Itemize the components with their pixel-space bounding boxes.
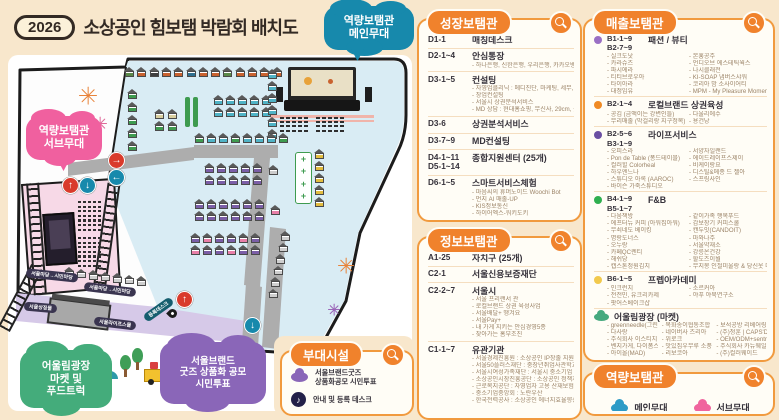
category-label: 어울림광장 (마켓) [614, 311, 679, 323]
exhibitor-name: - 캔두잇(CANDOIT) [689, 227, 767, 234]
booth-tent [202, 245, 213, 255]
booth-label: 컨설팅 [472, 75, 574, 86]
sub-stage-bubble: 역량보탬관 서브무대 [26, 116, 102, 160]
booth-label: 자치구 (25개) [472, 253, 574, 264]
booth-tent [127, 102, 138, 112]
booth-tent [278, 243, 289, 253]
audience-seat [93, 246, 96, 248]
legend-item: D3-6상권분석서비스 [428, 116, 574, 133]
panel-title: 매출보탬관 [592, 9, 678, 36]
direction-arrow: ↑ [176, 291, 193, 308]
exhibitor-name: - 캡스톤정원김치 [607, 263, 685, 270]
exhibitor-group: B1-1~9 B2-7~9패션 / 뷰티- 실크도낫- 카라슈즈- 파시에라- … [594, 32, 767, 96]
booth-tent [214, 245, 225, 255]
sub-item: - 마음씨의 휴머노이드 Woochi Bot [472, 189, 574, 196]
facility-label: 서울브랜드굿즈 상품화공모 시민투표 [315, 368, 377, 386]
direction-arrow: ← [108, 169, 125, 186]
booth-tent [225, 95, 236, 105]
sub-item: - 서울50플러스재단 : 중장년취업사관학교 [472, 362, 574, 369]
audience-seat [98, 201, 101, 203]
panel-title: 성장보탬관 [426, 9, 512, 36]
audience-seat [88, 219, 91, 221]
audience-seat [304, 117, 308, 119]
sub-item: - 한국전력공사 : 소상공인 에너지효율향상 지원사업 [472, 397, 574, 404]
panel-facility: 부대시설 서울브랜드굿즈 상품화공모 시민투표♪안내 및 등록 데스크 [280, 350, 414, 416]
audience-seat [292, 130, 296, 132]
sub-item: - 서울Pay+ [472, 317, 574, 324]
booth-tent [206, 199, 217, 209]
exhibitor-name: - 전전민, 유크리카제 [607, 292, 685, 299]
exhibitor-name: - 서양자일랜드 [689, 148, 767, 155]
sub-item: - 찾아가는 홈부조진 [472, 331, 574, 338]
booth-tent [218, 211, 229, 221]
legend-item: D2-1~4안심통장- 하나은행, 신한은행, 우리은행, 카카오뱅크 [428, 48, 574, 72]
audience-seat [304, 130, 308, 132]
booth-tent [225, 107, 236, 117]
booth-code: B2-5~6 B3-1~9 [607, 129, 643, 148]
facility-label: 안내 및 등록 데스크 [313, 395, 372, 404]
audience-seat [292, 117, 296, 119]
audience-seat [83, 206, 86, 208]
exhibitor-name: - 다움책방 [607, 213, 685, 220]
booth-tent [270, 205, 281, 215]
booth-label: MD컨설팅 [472, 136, 574, 147]
audience-seat [316, 121, 320, 123]
audience-seat [334, 125, 338, 127]
audience-seat [83, 251, 86, 253]
exhibitor-name: - 무리매출 (막걸리랑 지구정복) [607, 118, 685, 125]
stage-label: 메인무대 [634, 401, 667, 411]
magnifier-icon [549, 229, 573, 253]
page-title: 소상공인 힘보탬 박람회 배치도 [83, 14, 297, 40]
audience-seat [316, 125, 320, 127]
direction-arrow: ↑ [62, 177, 79, 194]
audience-seat [340, 117, 344, 119]
stage-color-dot [694, 403, 711, 412]
sub-item: - 서울 프리랜서 관 [472, 296, 574, 303]
legend-item: C1-1~7유관기관- 서울경제진흥원 : 소상공인 IP창출 지원사업- 서울… [428, 341, 574, 407]
audience-seat [98, 206, 101, 208]
booth-tent [252, 175, 263, 185]
exhibitor-name: - 소르커아 [689, 285, 767, 292]
page-header: 2026 소상공인 힘보탬 박람회 배치도 [14, 14, 298, 40]
booth-code: C1-1~7 [428, 345, 472, 405]
booth-tent [268, 165, 279, 175]
booth-tent [218, 133, 229, 143]
booth-tent [230, 199, 241, 209]
booth-tent [273, 266, 284, 276]
audience-seat [298, 121, 302, 123]
audience-seat [88, 265, 91, 267]
audience-seat [93, 210, 96, 212]
exhibitor-name: - 바이슨 가죽스튜디오 [607, 183, 685, 190]
audience-seat [304, 125, 308, 127]
booth-tent [242, 199, 253, 209]
panel-growth: 성장보탬관 D1-1매칭데스크D2-1~4안심통장- 하나은행, 신한은행, 우… [417, 18, 582, 222]
exhibitor-name: - 다사랑 [607, 329, 658, 336]
panel-title: 정보보탬관 [426, 227, 512, 254]
audience-seat [93, 229, 96, 231]
stage-screen [291, 70, 353, 96]
booth-tent [213, 95, 224, 105]
booth-tent [216, 175, 227, 185]
facility-row: ♪안내 및 등록 데스크 [291, 392, 406, 407]
booth-tent [275, 254, 286, 264]
booth-tent [235, 67, 246, 77]
audience-seat [93, 242, 96, 244]
audience-seat [322, 130, 326, 132]
booth-tent [112, 273, 123, 283]
audience-seat [334, 121, 338, 123]
booth-tent [314, 161, 325, 171]
audience-seat [328, 125, 332, 127]
audience-seat [78, 265, 81, 267]
audience-seat [88, 229, 91, 231]
exhibitor-name: - 스프링사인 [689, 176, 767, 183]
booth-tent [228, 163, 239, 173]
audience-seat [340, 125, 344, 127]
booth-tent [226, 233, 237, 243]
exhibitor-name: - greenneedle(그린니들) [607, 322, 658, 329]
audience-seat [98, 260, 101, 262]
exhibitor-name: - 주식회사 이스티치 [607, 336, 658, 343]
booth-tent [240, 163, 251, 173]
exhibitor-name: - 리보코아 [662, 350, 713, 357]
exhibitor-name: - 위로크 [662, 336, 713, 343]
booth-code: D3-1~5 [428, 75, 472, 114]
booth-tent [167, 109, 178, 119]
audience-seat [83, 229, 86, 231]
booth-tent [190, 245, 201, 255]
audience-seat [78, 201, 81, 203]
exhibitor-name: - 목화송이협동조합 [662, 322, 713, 329]
booth-tent [267, 117, 278, 127]
audience-seat [316, 117, 320, 119]
booth-tent [314, 197, 325, 207]
audience-seat [93, 219, 96, 221]
exhibitor-name: - 코리아 밤 소사이어티 [689, 81, 767, 88]
booth-tent [149, 67, 160, 77]
exhibitor-name: - 팟어스베이크샵 [607, 300, 685, 307]
booth-label: 종합지원센터 (25개) [472, 153, 574, 164]
exhibitor-name: - (주)컬러웨이드 [716, 350, 767, 357]
audience-seat [298, 125, 302, 127]
audience-seat [98, 237, 101, 239]
exhibitor-name: - 에이드레이프스제이 [689, 155, 767, 162]
booth-tent [267, 105, 278, 115]
audience-seat [93, 255, 96, 257]
booth-tent [154, 121, 165, 131]
magnifier-icon [742, 11, 766, 35]
audience-seat [78, 210, 81, 212]
category-dot [594, 36, 602, 44]
audience-seat [286, 117, 290, 119]
category-dot [594, 131, 602, 139]
facility-row: 서울브랜드굿즈 상품화공모 시민투표 [291, 368, 406, 386]
legend-item: D6-1~5스마트서비스체험- 마음씨의 휴머노이드 Woochi Bot- 먼… [428, 175, 574, 217]
sub-item: - MD 상담 : 현대홈쇼핑, 무신사, 29cm, 롯데백화점 [472, 106, 574, 113]
booth-code: B1-1~9 B2-7~9 [607, 34, 643, 53]
exhibitor-name: - 대정임유 [607, 88, 685, 95]
sub-item: - 자영업클리닉 : 메디진단, 마케팅, 세무, 디지털전문 [472, 85, 574, 92]
booth-tent [127, 115, 138, 125]
audience-seat [98, 255, 101, 257]
plaza-cloud-icon [594, 313, 609, 321]
audience-seat [78, 251, 81, 253]
booth-code: D4-1~11 D5-1~14 [428, 153, 472, 173]
exhibitor-name: - 컬러힐 Colorheal [607, 162, 685, 169]
audience-seat [98, 210, 101, 212]
plaza-booth-strip: ++++ [295, 152, 312, 204]
audience-seat [83, 215, 86, 217]
audience-seat [292, 121, 296, 123]
exhibitor-name: - 맛있집우무루 소풍상 [662, 343, 713, 350]
booth-code: C2-2~7 [428, 286, 472, 339]
audience-seat [98, 219, 101, 221]
audience-seat [78, 242, 81, 244]
booth-tent [242, 133, 253, 143]
category-label: 로컬브랜드 상권육성 [648, 99, 723, 111]
audience-seat [88, 251, 91, 253]
booth-tent [237, 95, 248, 105]
booth-tent [238, 245, 249, 255]
audience-seat [83, 255, 86, 257]
audience-seat [286, 121, 290, 123]
audience-seat [83, 265, 86, 267]
audience-seat [280, 117, 284, 119]
audience-seat [340, 121, 344, 123]
booth-tent [194, 199, 205, 209]
category-dot [594, 276, 602, 284]
legend-item: C2-2~7서울시- 서울 프리랜서 관- 로컬브랜드 상권 육성사업- 서울배… [428, 282, 574, 341]
booth-tent [213, 107, 224, 117]
audience-seat [78, 206, 81, 208]
audience-seat [93, 251, 96, 253]
registration-desk-icon: ♪ [291, 392, 306, 407]
booth-tent [249, 107, 260, 117]
audience-seat [316, 130, 320, 132]
audience-seat [93, 260, 96, 262]
booth-tent [194, 211, 205, 221]
audience-seat [83, 260, 86, 262]
audience-seat [83, 201, 86, 203]
exhibitor-name: - 무쇠네도 베이킹 [607, 227, 685, 234]
sub-item: - 서울시 상권분석서비스 [472, 99, 574, 106]
booth-label: 매칭데스크 [472, 35, 574, 46]
exhibitor-name: - KI-SOAP 냅버스샤워 [689, 74, 767, 81]
audience-seat [98, 229, 101, 231]
legend-item: C2-1서울신용보증재단 [428, 266, 574, 283]
exhibitor-name: - 서울약재소 [689, 242, 767, 249]
booth-tent [226, 245, 237, 255]
booth-tent [186, 67, 197, 77]
booth-tent [268, 289, 279, 299]
booth-tent [88, 270, 99, 280]
booth-tent [161, 67, 172, 77]
exhibitor-name: - 에프터뉴 커피 (아워집아워) [607, 220, 685, 227]
booth-tent [222, 67, 233, 77]
sub-item: - 하나은행, 신한은행, 우리은행, 카카오뱅크 [472, 62, 574, 69]
booth-tent [237, 107, 248, 117]
booth-tent [100, 272, 111, 282]
exhibitor-name: - 명랑도너스 [607, 235, 685, 242]
booth-tent [267, 81, 278, 91]
exhibitor-name: - 디스틸&메종 드 젤아 [689, 169, 767, 176]
exhibitor-name: - 파시에라 [607, 67, 685, 74]
direction-arrow: → [108, 152, 125, 169]
category-dot [594, 101, 602, 109]
exhibitor-name: - 아이올(MAD) [607, 350, 658, 357]
booth-tent [230, 133, 241, 143]
booth-tent [206, 133, 217, 143]
audience-seat [88, 237, 91, 239]
booth-tent [314, 185, 325, 195]
sub-item: - 서울경제진흥원 : 소상공인 IP창출 지원사업 [472, 355, 574, 362]
main-stage-bubble: 역량보탬관 메인무대 [324, 6, 414, 50]
audience-seat [78, 224, 81, 226]
booth-label: 안심통장 [472, 51, 574, 62]
category-label: F&B [648, 194, 666, 206]
booth-tent [314, 149, 325, 159]
exhibitor-name: - 할도즈이월 [689, 256, 767, 263]
audience-seat [93, 206, 96, 208]
speaker-right [365, 87, 372, 102]
legend-item: D3-1~5컨설팅- 자영업클리닉 : 메디진단, 마케팅, 세무, 디지털전문… [428, 71, 574, 116]
booth-tent [254, 199, 265, 209]
booth-tent [154, 109, 165, 119]
sub-item: - 서울시여성가족재단 : 서울시 중소기업 워라밸 포인트제 [472, 369, 574, 376]
exhibitor-name: - 나시클래전 [689, 67, 767, 74]
audience-seat [83, 210, 86, 212]
booth-label: 스마트서비스체험 [472, 178, 574, 189]
legend-item: D3-7~9MD컨설팅 [428, 133, 574, 150]
audience-seat [78, 219, 81, 221]
panel-title: 부대시설 [289, 341, 363, 368]
panel-sales: 매출보탬관 B1-1~9 B2-7~9패션 / 뷰티- 실크도낫- 카라슈즈- … [583, 18, 775, 362]
booth-tent [216, 163, 227, 173]
sub-item: - 내 가게 지키는 안심경영5종 [472, 324, 574, 331]
goods-vote-bubble: 서울브랜드 굿즈 상품화 공모 시민투표 [160, 342, 266, 404]
audience-seat [78, 229, 81, 231]
audience-seat [83, 246, 86, 248]
booth-tent [190, 233, 201, 243]
sub-item: - 먼지 AI 매출-UP [472, 196, 574, 203]
exhibitor-name: - 하우엔느나 [607, 169, 685, 176]
audience-seat [322, 117, 326, 119]
booth-tent [127, 141, 138, 151]
booth-tent [267, 93, 278, 103]
sub-item: - 중소기업중앙회 : 노란우산 [472, 390, 574, 397]
panel-capability: 역량보탬관 메인무대서브무대 [583, 372, 775, 416]
exhibitor-name: - 실크도낫 [607, 53, 685, 60]
booth-tent [204, 163, 215, 173]
booth-tent [228, 175, 239, 185]
audience-seat [88, 242, 91, 244]
audience-seat [334, 117, 338, 119]
exhibitor-group: 어울림광장 (마켓)- greenneedle(그린니들)- 다사랑- 주식회사… [594, 308, 767, 357]
booth-tent [218, 199, 229, 209]
booth-tent [204, 175, 215, 185]
audience-seat [88, 206, 91, 208]
audience-seat [298, 130, 302, 132]
exhibitor-name: - 본훙공주 [689, 53, 767, 60]
audience-seat [280, 130, 284, 132]
exhibitor-name: - 해쉬당 [607, 256, 685, 263]
audience-seat [93, 201, 96, 203]
booth-tent [278, 133, 289, 143]
category-dot [594, 196, 602, 204]
audience-seat [328, 130, 332, 132]
booth-tent [173, 67, 184, 77]
booth-tent [270, 277, 281, 287]
booth-tent [280, 231, 291, 241]
booth-tent [238, 233, 249, 243]
category-label: 라이프서비스 [648, 129, 697, 141]
audience-seat [78, 260, 81, 262]
screen-motif [304, 77, 312, 85]
exhibitor-group: B2-5~6 B3-1~9라이프서비스- 오피스라- Pon de Table … [594, 126, 767, 191]
exhibitor-name: - 다울리에수 [689, 111, 767, 118]
sub-item: - KIS정보통신 [472, 203, 574, 210]
audience-seat [83, 237, 86, 239]
booth-code: A1-25 [428, 253, 472, 264]
exhibitor-name: - 티티브로우아 [607, 74, 685, 81]
booth-tent [266, 133, 277, 143]
audience-seat [286, 125, 290, 127]
audience-seat [83, 219, 86, 221]
booth-tent [194, 133, 205, 143]
audience-seat [98, 215, 101, 217]
stage-base [284, 100, 360, 111]
booth-tent [198, 67, 209, 77]
booth-label: 상권분석서비스 [472, 119, 574, 130]
audience-seat [322, 125, 326, 127]
audience-seat [328, 121, 332, 123]
stage-legend-item: 서브무대 [694, 401, 750, 411]
audience-seat [292, 125, 296, 127]
booth-tent [247, 67, 258, 77]
booth-bar [185, 97, 190, 127]
booth-tent [249, 95, 260, 105]
audience-seat [78, 255, 81, 257]
booth-tent [242, 211, 253, 221]
sub-item: - 근로복지공단 : 자영업자 고용 산재보험 [472, 383, 574, 390]
audience-seat [304, 121, 308, 123]
booth-bar [193, 97, 198, 127]
booth-code: D3-7~9 [428, 136, 472, 147]
stage-color-dot [611, 403, 628, 412]
booth-tent [202, 233, 213, 243]
magnifier-icon [549, 11, 573, 35]
booth-tent [250, 233, 261, 243]
expo-floorplan-page: { "header": {"year_badge": "2026", "titl… [0, 0, 779, 419]
legend-item: D4-1~11 D5-1~14종합지원센터 (25개) [428, 149, 574, 175]
audience-seat [280, 121, 284, 123]
audience-seat [88, 255, 91, 257]
fries-sign [150, 362, 158, 369]
direction-arrow: ↓ [244, 317, 261, 334]
audience-seat [298, 117, 302, 119]
stage-legend-item: 메인무대 [611, 401, 667, 411]
audience-seat [78, 237, 81, 239]
exhibitor-name: - 보석공방 리베어링 [716, 322, 767, 329]
booth-tent [240, 175, 251, 185]
booth-tent [167, 121, 178, 131]
exhibitor-name: - 주식회사 카뉴웨일 [716, 343, 767, 350]
magnifier-icon [381, 343, 405, 367]
booth-code: D2-1~4 [428, 51, 472, 69]
sub-item: - 로컬브랜드 상권 육성사업 [472, 303, 574, 310]
